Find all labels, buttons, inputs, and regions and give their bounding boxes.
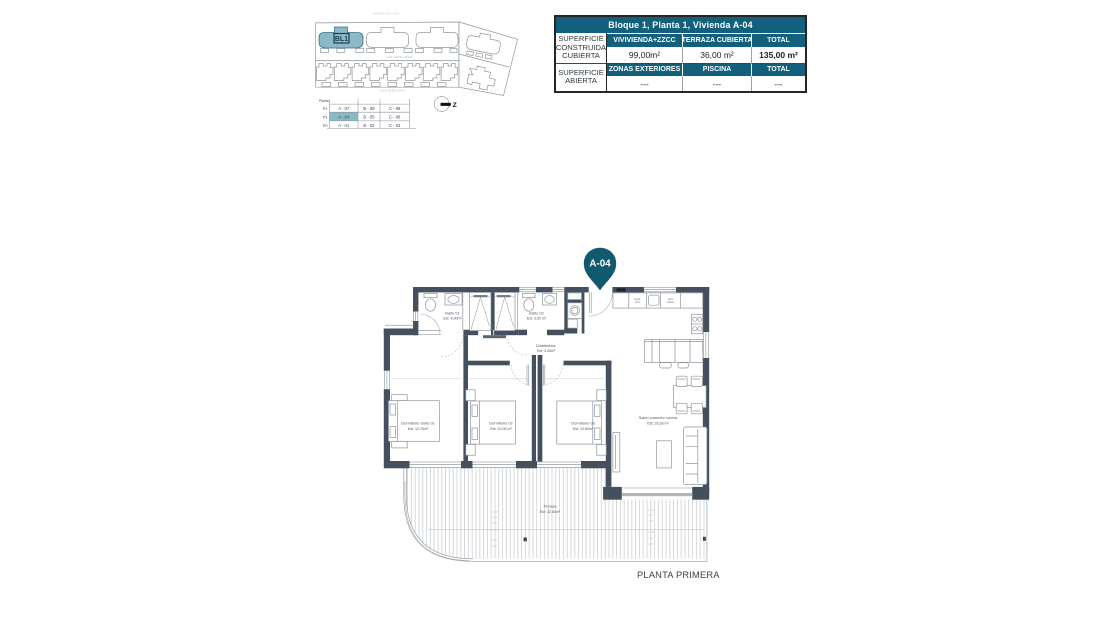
svg-text:Z: Z	[453, 102, 457, 109]
svg-text:A-04: A-04	[589, 258, 611, 269]
svg-text:C A L L E D E L M A R: C A L L E D E L M A R	[386, 55, 411, 59]
svg-text:P0: P0	[323, 124, 328, 128]
svg-text:A - 04: A - 04	[338, 115, 350, 120]
svg-text:3,05: 3,05	[647, 542, 653, 546]
svg-text:Terraza: Terraza	[544, 504, 558, 509]
svg-text:B - 08: B - 08	[363, 106, 375, 111]
svg-text:Baño 01: Baño 01	[445, 311, 460, 316]
svg-text:0,30: 0,30	[491, 515, 497, 519]
svg-text:B - 05: B - 05	[363, 115, 375, 120]
svg-text:Baño 02: Baño 02	[529, 311, 544, 316]
svg-text:A - 07: A - 07	[338, 106, 350, 111]
svg-text:Est: 4,00m²: Est: 4,00m²	[443, 317, 462, 321]
svg-text:C - 06: C - 06	[389, 115, 401, 120]
svg-text:12,45: 12,45	[490, 528, 498, 532]
svg-text:Planta: Planta	[319, 99, 329, 103]
svg-text:0,30: 0,30	[647, 513, 653, 517]
svg-text:Est: 28,28 m²: Est: 28,28 m²	[647, 421, 669, 425]
svg-text:12,45: 12,45	[646, 508, 654, 512]
svg-text:Salón comedor cocina: Salón comedor cocina	[639, 415, 678, 420]
svg-text:Est: 3,28m²: Est: 3,28m²	[537, 349, 556, 353]
svg-text:3,05: 3,05	[491, 521, 497, 525]
svg-text:Distribuidor: Distribuidor	[536, 343, 556, 348]
svg-text:vajillas: vajillas	[666, 300, 675, 304]
svg-text:Est: 10,00 m²: Est: 10,00 m²	[490, 427, 512, 431]
svg-text:Est: 3,60 m²: Est: 3,60 m²	[527, 317, 547, 321]
svg-text:Est: 10,80m²: Est: 10,80m²	[573, 427, 594, 431]
svg-text:3,05: 3,05	[647, 519, 653, 523]
svg-text:BL1: BL1	[335, 36, 348, 43]
svg-text:C - 09: C - 09	[389, 106, 401, 111]
svg-text:A - 01: A - 01	[338, 123, 350, 128]
svg-text:Dormitorio Suite 01: Dormitorio Suite 01	[401, 421, 434, 426]
svg-text:P2: P2	[323, 107, 328, 111]
svg-text:C - 03: C - 03	[389, 123, 401, 128]
svg-text:Est: 32,60m²: Est: 32,60m²	[540, 510, 561, 514]
svg-text:0,30: 0,30	[491, 538, 497, 542]
svg-text:0,30: 0,30	[647, 536, 653, 540]
svg-text:P1: P1	[323, 116, 328, 120]
svg-text:Dormitorio 02: Dormitorio 02	[489, 421, 512, 426]
svg-text:dero: dero	[635, 300, 641, 304]
svg-text:3,05: 3,05	[491, 544, 497, 548]
svg-text:U R B A N I Z A C I O N: U R B A N I Z A C I O N	[373, 13, 399, 16]
svg-text:12,45: 12,45	[490, 510, 498, 514]
svg-text:Est: 12,76m²: Est: 12,76m²	[408, 427, 429, 431]
svg-text:C A L L E D E L S O L: C A L L E D E L S O L	[380, 89, 406, 93]
svg-text:Dormitorio 03: Dormitorio 03	[571, 421, 594, 426]
svg-text:12,45: 12,45	[646, 530, 654, 534]
svg-text:B - 02: B - 02	[363, 123, 375, 128]
